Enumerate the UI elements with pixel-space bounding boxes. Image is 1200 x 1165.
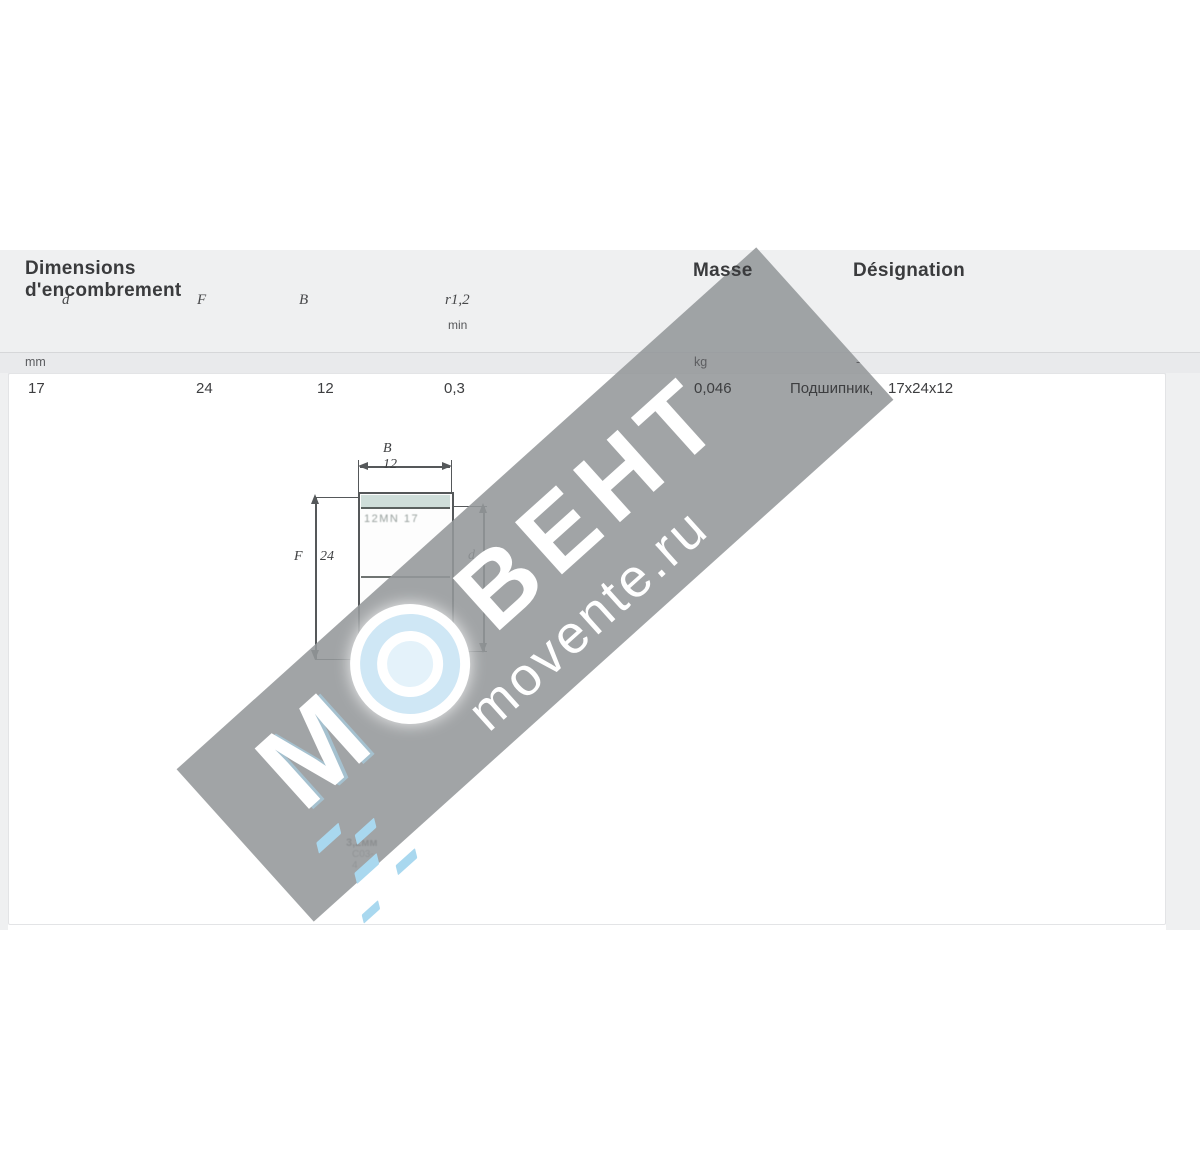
dimensions-group-header: Dimensions d'encombrement bbox=[25, 258, 182, 302]
dim-line-left bbox=[315, 497, 317, 660]
cell-r-value: 0,3 bbox=[444, 380, 465, 397]
units-designation: - bbox=[856, 355, 860, 369]
right-gutter bbox=[1166, 373, 1200, 930]
units-kg: kg bbox=[694, 355, 707, 369]
designation-header: Désignation bbox=[853, 260, 965, 282]
bearing-ring-inner-icon bbox=[363, 617, 456, 710]
left-dimension-symbol: F bbox=[294, 549, 303, 565]
column-symbol-B: B bbox=[299, 292, 308, 309]
units-mm: mm bbox=[25, 355, 46, 369]
cell-designation-dims: 17х24х12 bbox=[888, 380, 953, 397]
column-symbol-F: F bbox=[197, 292, 206, 309]
left-gutter bbox=[0, 373, 8, 930]
arrowhead-icon bbox=[311, 494, 319, 504]
cell-designation-name: Подшипник, bbox=[790, 380, 873, 397]
cell-B-value: 12 bbox=[317, 380, 334, 397]
mass-header: Masse bbox=[693, 260, 753, 282]
ext-line bbox=[316, 497, 358, 498]
column-symbol-r-min: min bbox=[448, 318, 467, 332]
column-symbol-r: r1,2 bbox=[445, 292, 470, 309]
datasheet-page: 12MN 17 B 12 F 24 d 17 3,2мм С03-4 М bbox=[0, 0, 1200, 1165]
units-row-band bbox=[0, 352, 1200, 375]
logo-accent-bar bbox=[355, 818, 377, 845]
column-symbol-d: d bbox=[62, 292, 70, 309]
cell-F-value: 24 bbox=[196, 380, 213, 397]
raceway-band-top bbox=[361, 495, 450, 509]
cell-d-value: 17 bbox=[28, 380, 45, 397]
cell-mass-value: 0,046 bbox=[694, 380, 732, 397]
width-dimension-label: B 12 bbox=[383, 441, 397, 473]
bearing-stamp-text: 12MN 17 bbox=[364, 513, 456, 525]
arrowhead-icon bbox=[358, 462, 368, 470]
arrowhead-icon bbox=[442, 462, 452, 470]
dim-line-top bbox=[360, 466, 450, 468]
left-dimension-value: 24 bbox=[320, 549, 334, 565]
